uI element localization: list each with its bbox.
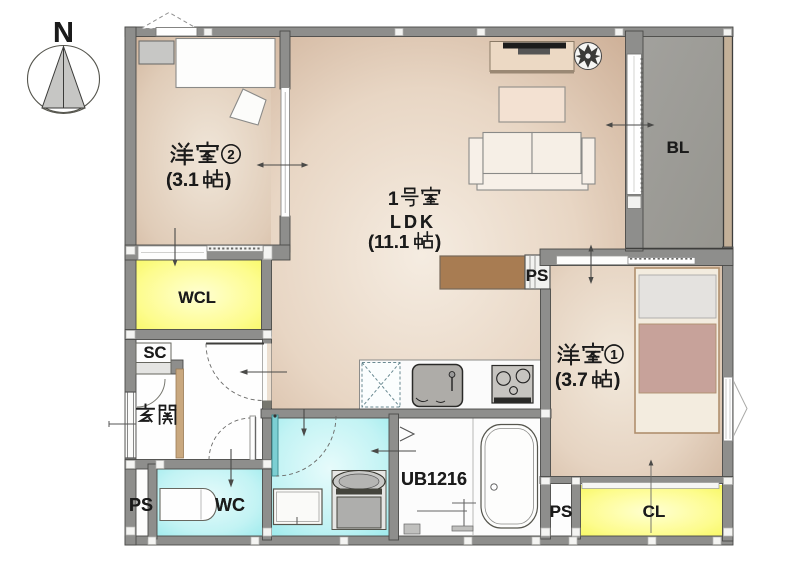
svg-text:N: N (53, 17, 74, 49)
svg-text:): ) (614, 370, 620, 391)
svg-text:WCL: WCL (178, 289, 216, 307)
svg-text:): ) (225, 170, 231, 191)
svg-text:(3.1: (3.1 (166, 170, 199, 191)
svg-text:PS: PS (550, 502, 573, 521)
svg-text:): ) (435, 231, 441, 252)
svg-text:(11.1: (11.1 (368, 231, 409, 252)
svg-text:CL: CL (643, 502, 666, 521)
svg-text:1: 1 (610, 347, 617, 362)
svg-text:SC: SC (144, 344, 167, 362)
svg-text:UB1216: UB1216 (401, 469, 467, 489)
svg-text:(3.7: (3.7 (555, 370, 588, 391)
svg-text:PS: PS (129, 495, 153, 515)
svg-text:2: 2 (227, 147, 234, 162)
svg-text:1: 1 (388, 189, 399, 210)
svg-text:BL: BL (667, 138, 690, 157)
svg-text:LDK: LDK (390, 212, 436, 232)
svg-text:WC: WC (215, 495, 245, 515)
svg-text:PS: PS (526, 266, 549, 285)
